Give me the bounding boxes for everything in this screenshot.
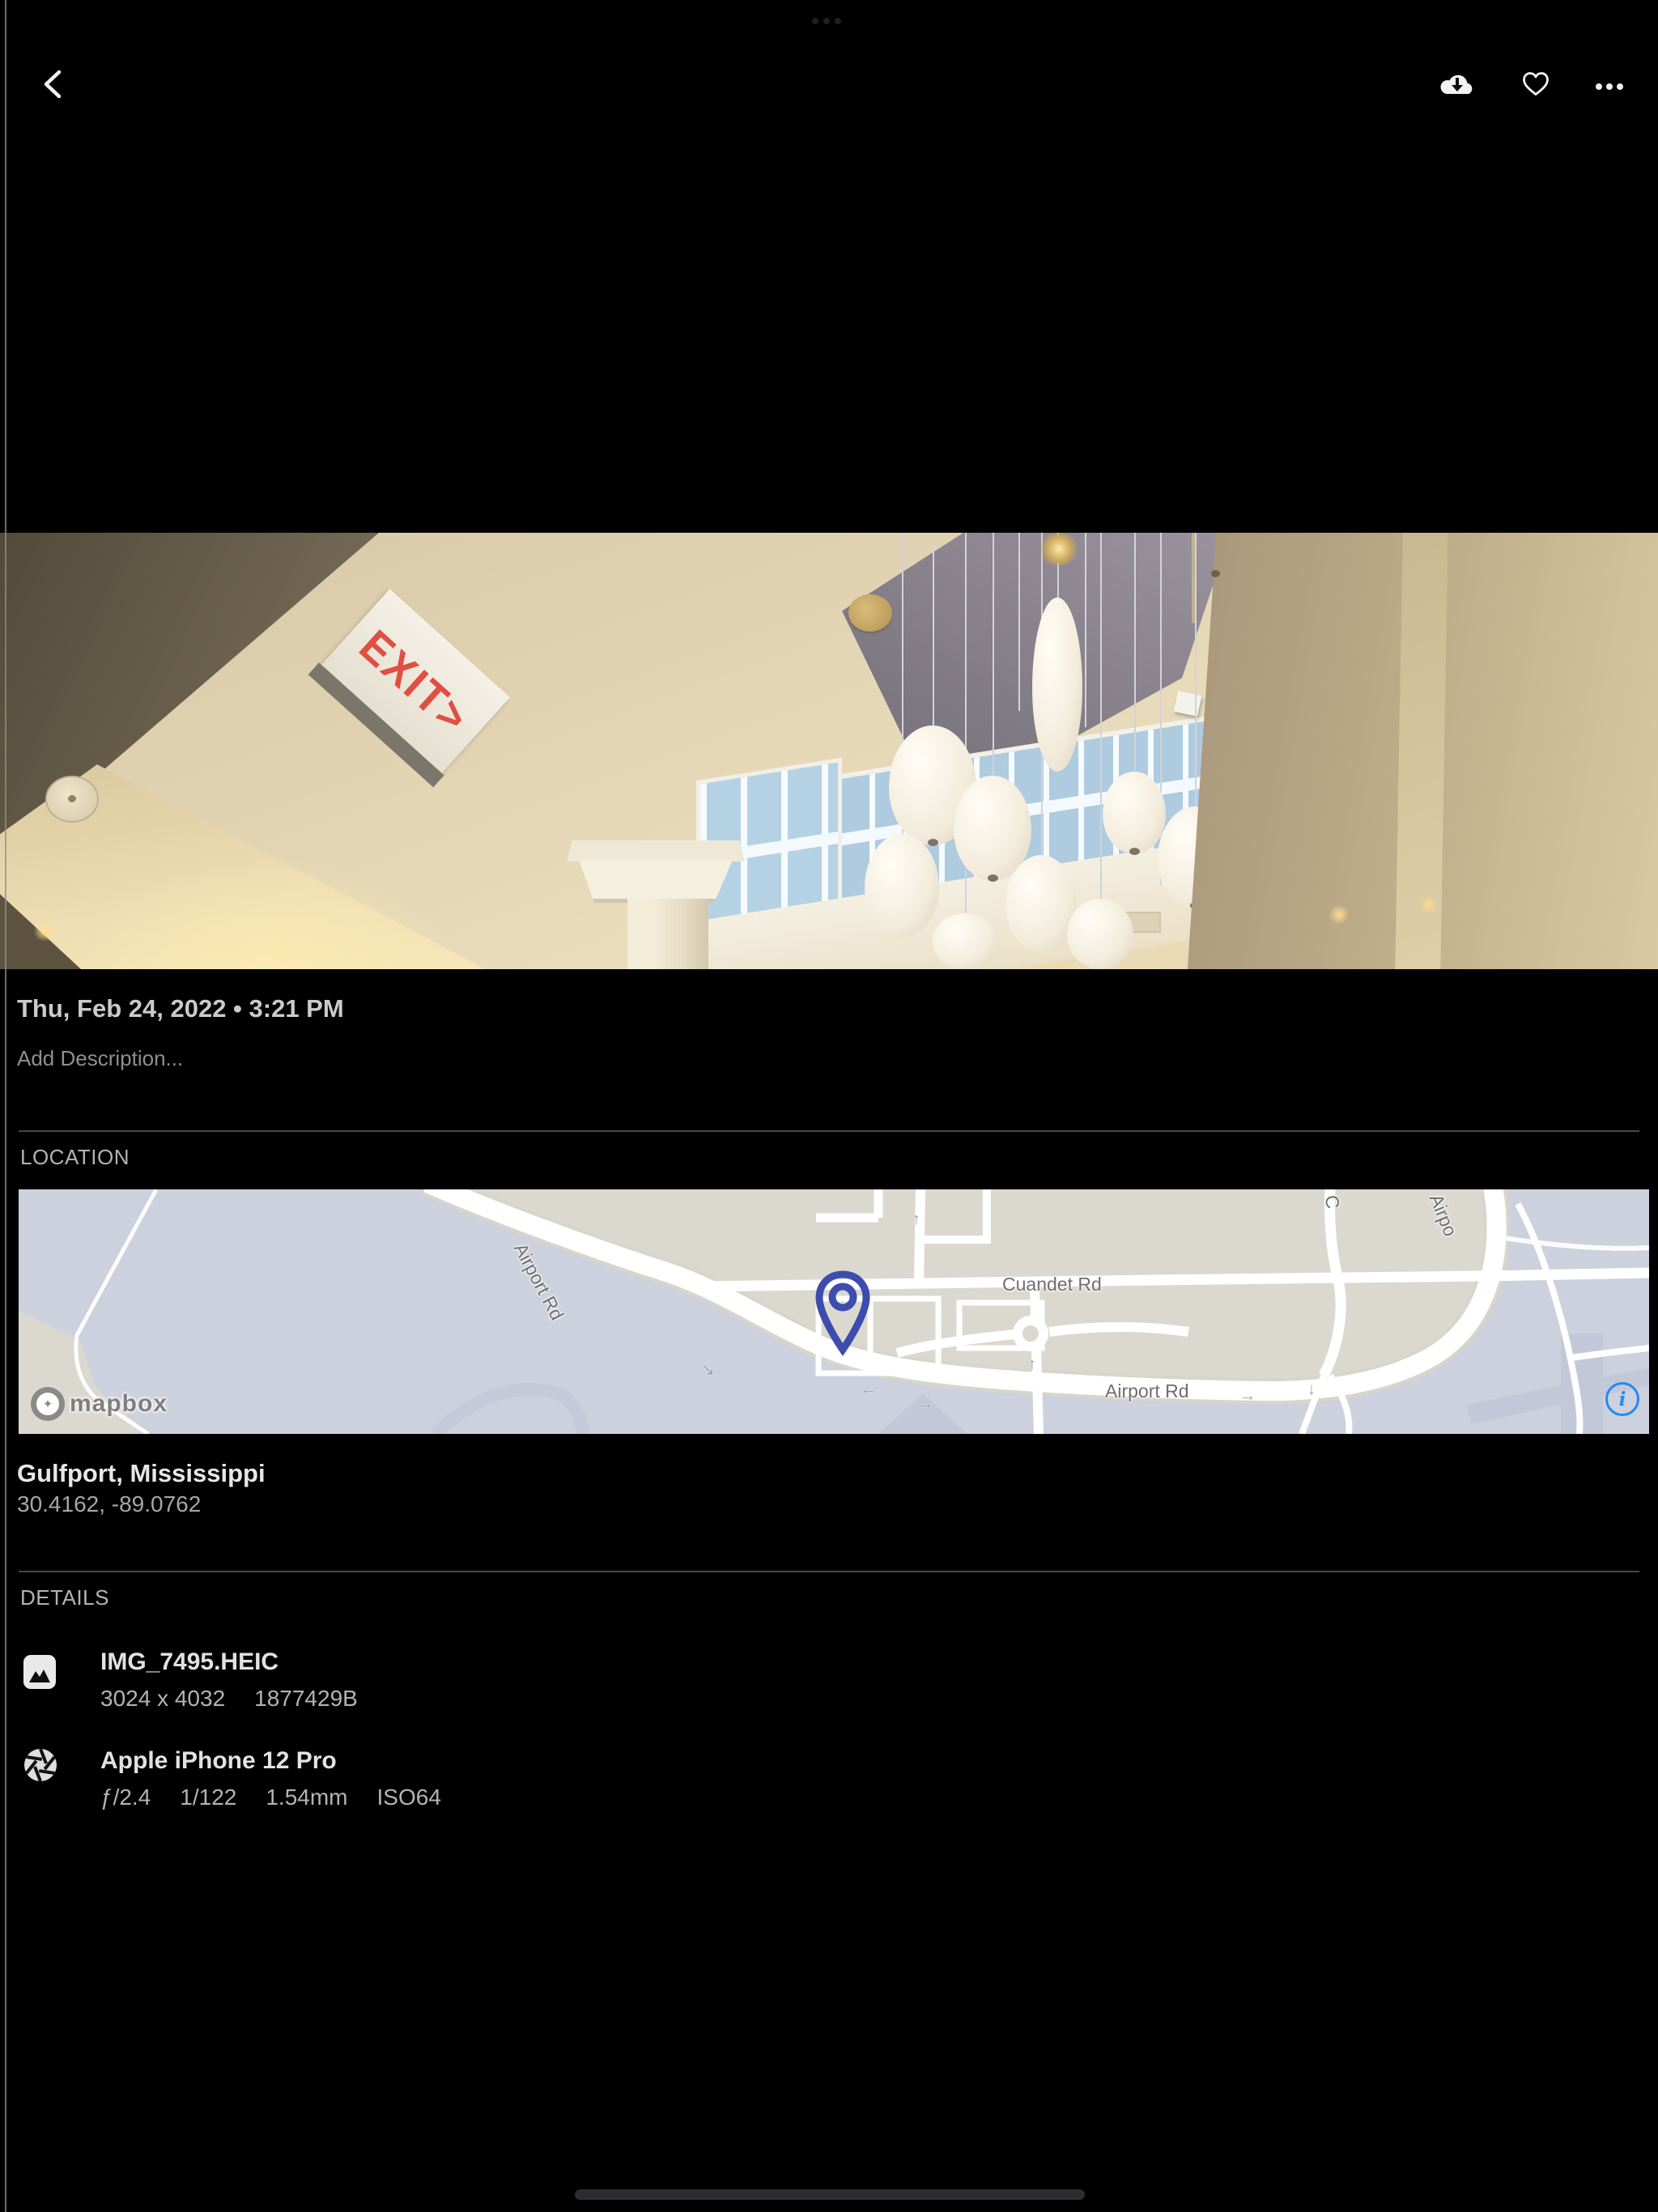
file-name: IMG_7495.HEIC bbox=[100, 1648, 278, 1676]
mapbox-logo-icon: ✦ bbox=[31, 1387, 65, 1421]
recessed-light bbox=[1419, 897, 1438, 912]
favorite-button[interactable] bbox=[1519, 70, 1553, 102]
file-dimensions: 3024 x 4032 bbox=[100, 1686, 225, 1712]
details-section-title: DETAILS bbox=[20, 1585, 109, 1610]
camera-model: Apple iPhone 12 Pro bbox=[100, 1747, 337, 1775]
home-indicator[interactable] bbox=[575, 2189, 1085, 2200]
pendant-lamp bbox=[1067, 899, 1133, 969]
lamp-cable bbox=[933, 533, 934, 731]
cloud-download-icon bbox=[1438, 71, 1477, 103]
location-place: Gulfport, Mississippi bbox=[17, 1459, 266, 1488]
location-section-title: LOCATION bbox=[20, 1145, 130, 1170]
camera-iso: ISO64 bbox=[377, 1784, 441, 1810]
mapbox-wordmark: mapbox bbox=[70, 1390, 168, 1418]
pendant-lamp bbox=[1032, 598, 1082, 772]
photo-ceiling-medallion bbox=[848, 594, 892, 632]
info-icon: i bbox=[1619, 1389, 1626, 1410]
location-map[interactable]: Airport Rd Cuandet Rd Airport Rd C Airpo… bbox=[19, 1189, 1649, 1434]
location-coordinates: 30.4162, -89.0762 bbox=[17, 1491, 201, 1517]
exit-sign: EXIT> bbox=[304, 589, 514, 795]
lamp-cable bbox=[1195, 533, 1197, 810]
lamp-cable bbox=[993, 533, 994, 782]
description-placeholder[interactable]: Add Description... bbox=[17, 1046, 183, 1071]
map-info-button[interactable]: i bbox=[1605, 1382, 1639, 1416]
back-button[interactable] bbox=[36, 68, 68, 104]
map-road-label: Cuandet Rd bbox=[1002, 1274, 1102, 1295]
lamp-cable bbox=[1134, 533, 1136, 776]
map-oneway-arrow: → bbox=[1239, 1387, 1256, 1406]
photo-preview[interactable]: EXIT> bbox=[0, 533, 1658, 969]
map-road-label: Airport Rd bbox=[1105, 1380, 1189, 1402]
map-oneway-arrow: ↑ bbox=[912, 1210, 920, 1229]
map-oneway-arrow: → bbox=[917, 1395, 933, 1414]
photo-speaker-box bbox=[1174, 691, 1202, 717]
lamp-cap bbox=[1129, 848, 1140, 855]
mapbox-attribution[interactable]: ✦ mapbox bbox=[31, 1387, 168, 1421]
photo-smoke-detector bbox=[45, 776, 99, 823]
photo-warm-glow bbox=[73, 857, 461, 969]
chevron-left-icon bbox=[40, 69, 64, 104]
photo-column-capital bbox=[579, 860, 733, 903]
download-button[interactable] bbox=[1436, 71, 1478, 102]
map-oneway-arrow: ↘ bbox=[701, 1359, 715, 1380]
map-oneway-arrow: ↑ bbox=[1028, 1355, 1036, 1374]
pendant-lamp bbox=[865, 834, 939, 938]
status-ellipsis-icon bbox=[812, 18, 841, 24]
map-road-label: C bbox=[1320, 1194, 1344, 1210]
pendant-lamp bbox=[1005, 855, 1077, 952]
adjacent-photo-edge bbox=[5, 0, 6, 2212]
section-divider bbox=[19, 1130, 1639, 1132]
file-size: 1877429B bbox=[254, 1686, 358, 1712]
camera-aperture: ƒ/2.4 bbox=[100, 1784, 151, 1810]
lamp-cap bbox=[988, 874, 998, 882]
file-meta: 3024 x 4032 1877429B bbox=[100, 1686, 387, 1712]
lamp-cable bbox=[1085, 533, 1086, 727]
pendant-lamp bbox=[933, 913, 997, 969]
photo-column-capital bbox=[567, 840, 745, 861]
photo-date[interactable]: Thu, Feb 24, 2022 • 3:21 PM bbox=[17, 994, 344, 1023]
map-pin-icon bbox=[814, 1270, 871, 1360]
photo-column-shaft bbox=[627, 899, 708, 969]
camera-focal-length: 1.54mm bbox=[266, 1784, 347, 1810]
section-divider bbox=[19, 1571, 1639, 1572]
camera-shutter: 1/122 bbox=[180, 1784, 236, 1810]
recessed-light bbox=[1038, 533, 1080, 565]
camera-settings: ƒ/2.4 1/122 1.54mm ISO64 bbox=[100, 1784, 470, 1810]
ellipsis-icon bbox=[1596, 83, 1602, 90]
photo-detail-screen: EXIT> Thu, Feb 24, 2022 • 3:21 PM Add De… bbox=[0, 0, 1658, 2212]
recessed-light bbox=[1328, 905, 1350, 924]
lamp-cap bbox=[928, 839, 938, 846]
pendant-lamp bbox=[1103, 772, 1166, 854]
map-oneway-arrow: ↓ bbox=[1307, 1380, 1316, 1399]
lamp-cable bbox=[1018, 533, 1020, 711]
map-oneway-arrow: ← bbox=[861, 1380, 877, 1399]
heart-icon bbox=[1520, 70, 1551, 102]
recessed-light bbox=[32, 921, 57, 941]
more-options-button[interactable] bbox=[1595, 81, 1624, 92]
mapbox-star-glyph: ✦ bbox=[43, 1397, 53, 1411]
lamp-cable bbox=[1100, 533, 1102, 904]
image-file-icon bbox=[23, 1652, 57, 1696]
camera-aperture-icon bbox=[23, 1747, 58, 1787]
sprinkler-dot bbox=[1211, 570, 1220, 577]
